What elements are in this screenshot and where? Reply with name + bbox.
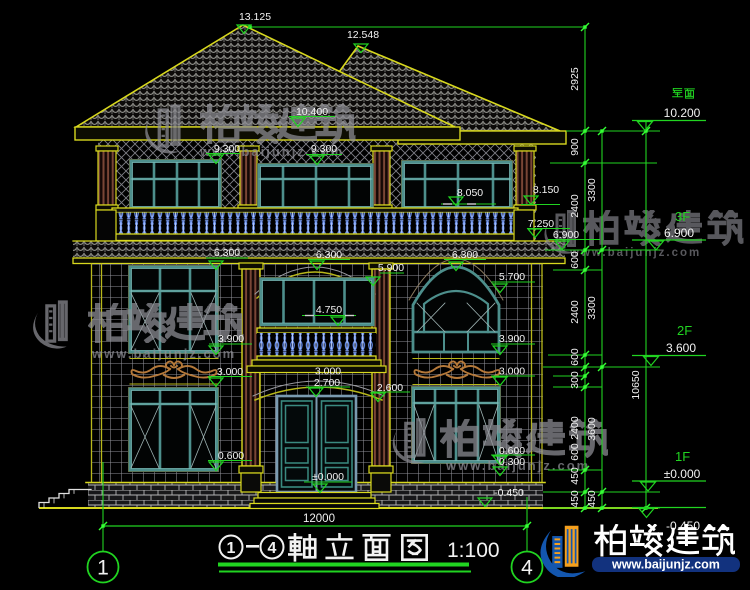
svg-text:1F: 1F [675, 449, 690, 464]
svg-text:5.900: 5.900 [378, 262, 404, 274]
svg-text:4: 4 [268, 540, 277, 557]
svg-text:6.900: 6.900 [664, 226, 694, 240]
svg-text:±0.000: ±0.000 [664, 467, 701, 481]
svg-text:4: 4 [521, 557, 533, 580]
svg-text:6.300: 6.300 [214, 247, 240, 259]
svg-text:3.900: 3.900 [499, 333, 525, 345]
svg-text:2925: 2925 [569, 67, 581, 91]
svg-text:8.150: 8.150 [533, 184, 559, 196]
svg-text:-0.450: -0.450 [494, 487, 524, 499]
svg-text:-0.450: -0.450 [666, 519, 700, 533]
svg-text:450: 450 [569, 490, 581, 508]
svg-text:1: 1 [97, 557, 109, 580]
svg-text:12000: 12000 [303, 513, 335, 525]
svg-text:600: 600 [569, 251, 581, 269]
svg-text:www.baijunjz.com: www.baijunjz.com [611, 558, 720, 572]
svg-text:2400: 2400 [569, 194, 581, 218]
svg-text:12.548: 12.548 [347, 29, 379, 41]
svg-text:600: 600 [569, 348, 581, 366]
svg-text:2400: 2400 [569, 416, 581, 440]
svg-text:13.125: 13.125 [239, 11, 271, 23]
svg-text:300: 300 [569, 371, 581, 389]
svg-text:450: 450 [586, 490, 598, 508]
svg-text:±0.000: ±0.000 [312, 471, 344, 483]
svg-text:3600: 3600 [586, 417, 598, 441]
svg-text:900: 900 [569, 138, 581, 156]
svg-text:2400: 2400 [569, 300, 581, 324]
svg-text:3.900: 3.900 [218, 333, 244, 345]
svg-text:4.750: 4.750 [316, 304, 342, 316]
svg-text:2F: 2F [677, 323, 692, 338]
svg-text:1:100: 1:100 [447, 539, 500, 562]
svg-text:3F: 3F [675, 209, 690, 224]
svg-text:0.300: 0.300 [499, 456, 525, 468]
svg-text:5.700: 5.700 [499, 271, 525, 283]
svg-text:3300: 3300 [586, 178, 598, 202]
svg-text:600: 600 [569, 443, 581, 461]
svg-text:9.300: 9.300 [311, 143, 337, 155]
svg-text:3300: 3300 [586, 296, 598, 320]
svg-text:3.600: 3.600 [666, 341, 696, 355]
svg-text:10650: 10650 [630, 370, 642, 399]
svg-text:450: 450 [569, 467, 581, 485]
svg-text:1: 1 [227, 540, 236, 557]
svg-text:3.000: 3.000 [315, 366, 341, 378]
svg-text:www.baijunjz.com: www.baijunjz.com [569, 247, 701, 259]
svg-text:10.200: 10.200 [664, 106, 701, 120]
